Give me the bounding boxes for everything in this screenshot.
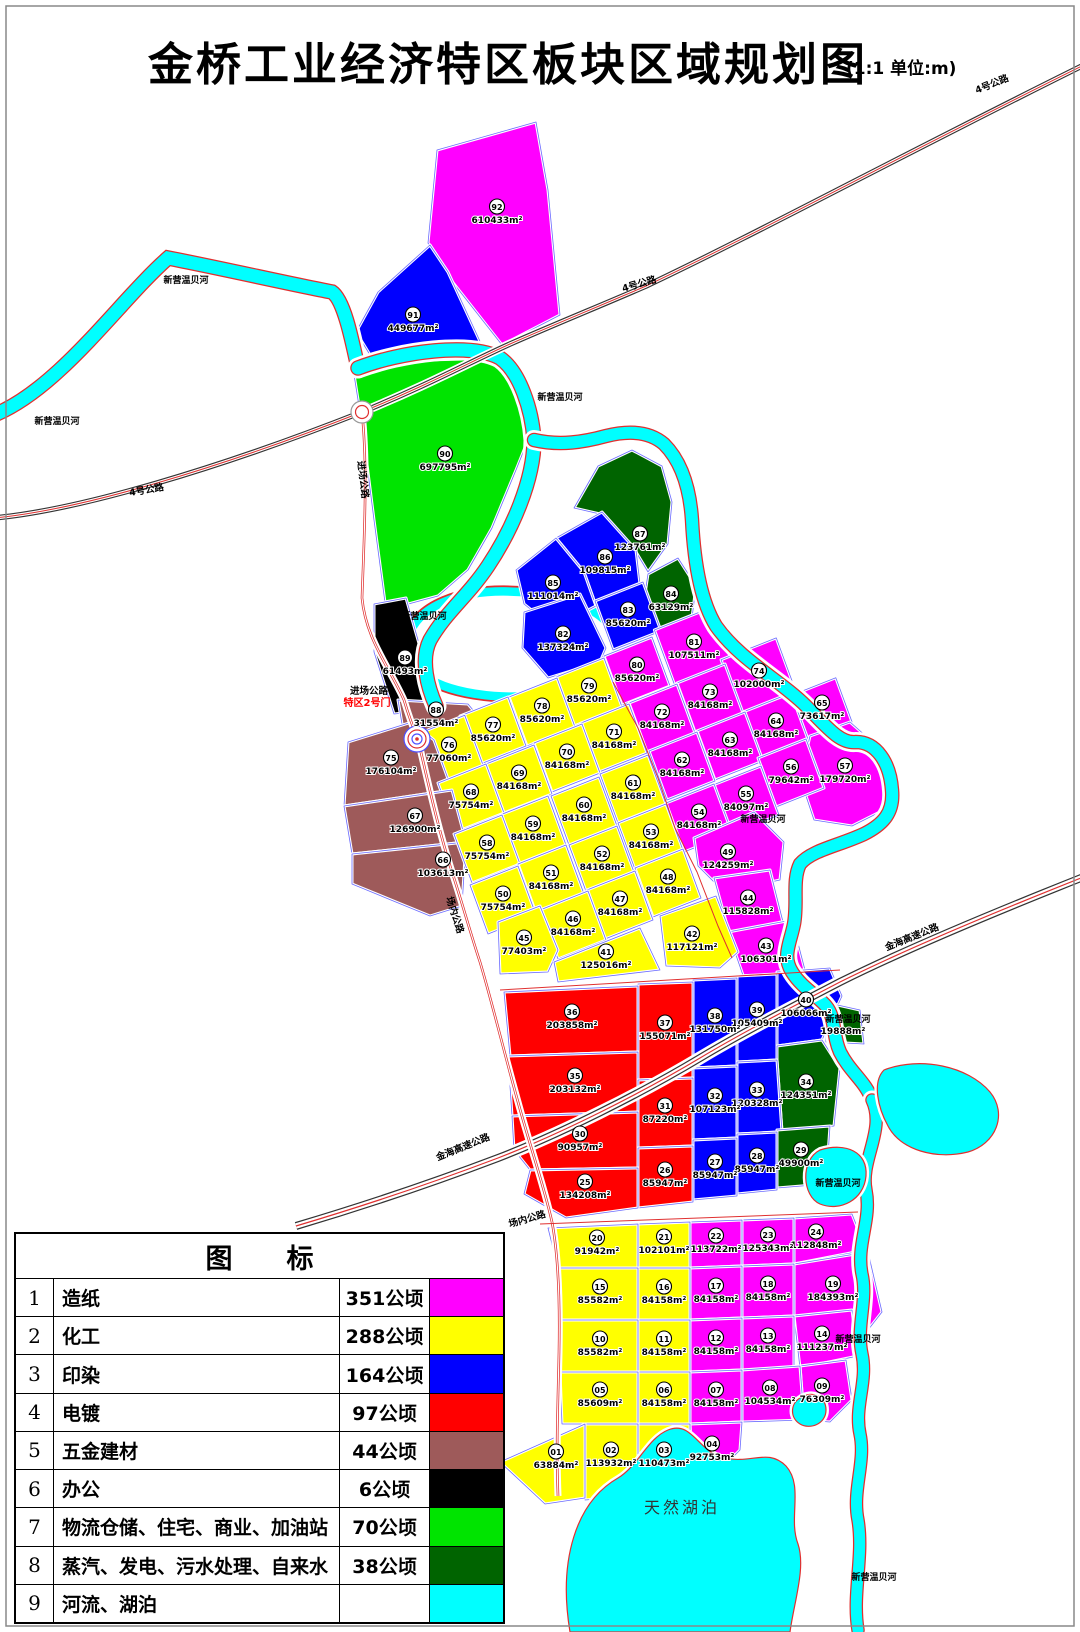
block-area-text: 155071m²: [640, 1032, 691, 1042]
block-area-text: 84168m²: [598, 908, 643, 918]
block-number: 13: [762, 1332, 773, 1341]
block-area-text: 84168m²: [754, 730, 799, 740]
block-number: 92: [491, 203, 502, 212]
legend-swatch: [430, 1317, 503, 1354]
legend-row-number: 4: [16, 1394, 54, 1431]
block-area-text: 84168m²: [562, 814, 607, 824]
block-area-text: 85620m²: [520, 715, 565, 725]
block-number: 21: [658, 1233, 670, 1242]
block-area-text: 184393m²: [808, 1293, 859, 1303]
block-22-region[interactable]: [690, 1220, 742, 1268]
block-area-text: 84097m²: [724, 803, 769, 813]
river-label: 新营温贝河: [34, 415, 79, 427]
block-number: 22: [710, 1232, 721, 1241]
block-number: 48: [662, 873, 674, 882]
block-area-text: 104534m²: [745, 1397, 796, 1407]
legend-row: 5五金建材44公顷: [16, 1432, 503, 1470]
legend-row-name: 五金建材: [54, 1432, 340, 1469]
block-area-text: 85609m²: [578, 1399, 623, 1409]
block-area-text: 87220m²: [643, 1115, 688, 1125]
block-number: 40: [800, 996, 812, 1005]
block-number: 11: [658, 1335, 670, 1344]
block-number: 04: [706, 1440, 718, 1449]
legend-row: 4电镀97公顷: [16, 1394, 503, 1432]
legend-row: 8蒸汽、发电、污水处理、自来水38公顷: [16, 1547, 503, 1585]
block-area-text: 84168m²: [646, 886, 691, 896]
lake-shape: [877, 1064, 998, 1155]
legend-row-name: 蒸汽、发电、污水处理、自来水: [54, 1547, 340, 1584]
block-area-text: 84168m²: [511, 833, 556, 843]
block-area-text: 449677m²: [388, 324, 439, 334]
river-label: 新营温贝河: [401, 610, 446, 622]
block-area-text: 115828m²: [723, 907, 774, 917]
block-number: 27: [709, 1158, 720, 1167]
river-label: 新营温贝河: [815, 1177, 860, 1189]
river-label: 新营温贝河: [835, 1333, 880, 1345]
block-number: 16: [658, 1283, 670, 1292]
legend-swatch: [430, 1432, 503, 1469]
block-number: 61: [627, 779, 639, 788]
legend-row-area: 6公顷: [340, 1470, 430, 1507]
block-area-text: 124259m²: [703, 861, 754, 871]
block-area-text: 203858m²: [547, 1021, 598, 1031]
block-area-text: 85620m²: [471, 734, 516, 744]
block-number: 45: [518, 934, 530, 943]
block-number: 88: [430, 706, 442, 715]
block-number: 36: [566, 1008, 578, 1017]
legend-swatch: [430, 1355, 503, 1392]
river-label: 新营温贝河: [851, 1571, 896, 1583]
block-number: 80: [631, 661, 643, 670]
legend-row-area: 351公顷: [340, 1279, 430, 1316]
block-number: 50: [497, 890, 509, 899]
block-number: 19: [827, 1280, 839, 1289]
road-label: 4号公路: [973, 72, 1011, 96]
page-title: 金桥工业经济特区板块区域规划图: [148, 28, 868, 93]
block-area-text: 75754m²: [481, 903, 526, 913]
block-area-text: 91942m²: [575, 1247, 620, 1257]
planning-map-page: 92610433m²91449677m²90697795m²8961493m²8…: [0, 0, 1080, 1632]
block-area-text: 84168m²: [708, 749, 753, 759]
block-number: 66: [437, 856, 449, 865]
legend-row-number: 3: [16, 1355, 54, 1392]
legend-row-number: 5: [16, 1432, 54, 1469]
block-area-text: 75754m²: [465, 852, 510, 862]
block-number: 62: [676, 756, 687, 765]
legend-row: 1造纸351公顷: [16, 1279, 503, 1317]
block-area-text: 110473m²: [639, 1459, 690, 1469]
block-area-text: 19888m²: [821, 1027, 866, 1037]
river-label: 新营温贝河: [740, 813, 785, 825]
block-number: 74: [753, 667, 765, 676]
block-area-text: 106066m²: [781, 1009, 832, 1019]
block-number: 38: [709, 1012, 721, 1021]
legend-row-number: 1: [16, 1279, 54, 1316]
block-05-region[interactable]: [560, 1372, 638, 1424]
legend-row-name: 办公: [54, 1470, 340, 1507]
legend-row: 7物流仓储、住宅、商业、加油站70公顷: [16, 1508, 503, 1546]
block-area-text: 84158m²: [746, 1345, 791, 1355]
block-number: 43: [760, 942, 771, 951]
block-number: 33: [751, 1086, 762, 1095]
block-area-text: 113722m²: [691, 1245, 742, 1255]
lake-label: 天然湖泊: [644, 1498, 720, 1517]
legend-row-number: 2: [16, 1317, 54, 1354]
legend-row: 2化工288公顷: [16, 1317, 503, 1355]
block-number: 59: [527, 820, 539, 829]
block-area-text: 84158m²: [642, 1296, 687, 1306]
block-number: 28: [751, 1152, 763, 1161]
block-number: 25: [579, 1178, 591, 1187]
block-area-text: 76309m²: [800, 1395, 845, 1405]
block-number: 14: [816, 1330, 828, 1339]
block-number: 64: [770, 717, 782, 726]
legend-row-area: 164公顷: [340, 1355, 430, 1392]
legend-row: 3印染164公顷: [16, 1355, 503, 1393]
block-area-text: 92753m²: [690, 1453, 735, 1463]
block-number: 72: [656, 708, 667, 717]
block-number: 26: [659, 1166, 671, 1175]
block-area-text: 107123m²: [690, 1105, 741, 1115]
block-area-text: 77060m²: [427, 754, 472, 764]
legend-row-area: 70公顷: [340, 1508, 430, 1545]
block-area-text: 84168m²: [545, 761, 590, 771]
block-area-text: 84168m²: [529, 882, 574, 892]
legend-swatch: [430, 1470, 503, 1507]
block-area-text: 85582m²: [578, 1348, 623, 1358]
block-area-text: 63884m²: [534, 1461, 579, 1471]
block-area-text: 84158m²: [694, 1295, 739, 1305]
legend-swatch: [430, 1279, 503, 1316]
legend-swatch: [430, 1547, 503, 1584]
legend-row-number: 6: [16, 1470, 54, 1507]
block-number: 68: [465, 788, 477, 797]
block-area-text: 112848m²: [791, 1241, 842, 1251]
block-number: 52: [596, 850, 607, 859]
block-number: 41: [600, 948, 612, 957]
block-area-label: 19888m²: [821, 1027, 866, 1037]
legend-row-name: 印染: [54, 1355, 340, 1392]
block-area-text: 63129m²: [649, 603, 694, 613]
block-area-text: 84158m²: [642, 1348, 687, 1358]
block-area-text: 123761m²: [615, 543, 666, 553]
legend: 图 标 1造纸351公顷2化工288公顷3印染164公顷4电镀97公顷5五金建材…: [14, 1232, 505, 1624]
block-area-text: 61493m²: [383, 667, 428, 677]
block-number: 44: [742, 894, 754, 903]
block-area-text: 131750m²: [690, 1025, 741, 1035]
block-area-text: 84158m²: [746, 1293, 791, 1303]
block-number: 12: [710, 1334, 721, 1343]
block-number: 53: [645, 828, 656, 837]
block-number: 10: [594, 1335, 606, 1344]
block-number: 55: [740, 790, 752, 799]
block-area-text: 102000m²: [734, 680, 785, 690]
block-area-text: 85947m²: [643, 1179, 688, 1189]
block-90-region[interactable]: [352, 358, 532, 610]
block-area-text: 176104m²: [366, 767, 417, 777]
block-area-text: 137324m²: [538, 643, 589, 653]
block-area-text: 111014m²: [528, 592, 579, 602]
block-06-region[interactable]: [638, 1372, 690, 1424]
block-area-text: 610433m²: [472, 216, 523, 226]
block-number: 82: [557, 630, 568, 639]
legend-row-name: 化工: [54, 1317, 340, 1354]
block-area-text: 84158m²: [642, 1399, 687, 1409]
block-number: 83: [622, 606, 633, 615]
block-area-text: 84168m²: [677, 821, 722, 831]
legend-swatch: [430, 1394, 503, 1431]
scale-note: (1:1 单位:m): [846, 54, 956, 79]
block-area-text: 113932m²: [586, 1459, 637, 1469]
block-area-text: 179720m²: [820, 775, 871, 785]
block-number: 81: [688, 638, 700, 647]
block-number: 73: [704, 688, 715, 697]
block-area-text: 73617m²: [800, 712, 845, 722]
block-number: 70: [561, 748, 573, 757]
block-area-text: 85620m²: [606, 619, 651, 629]
roundabout-icon: [351, 401, 373, 423]
block-number: 78: [536, 702, 548, 711]
road-label: 进场公路: [350, 685, 389, 697]
block-number: 56: [785, 763, 797, 772]
block-area-text: 85947m²: [693, 1171, 738, 1181]
block-area-text: 85620m²: [615, 674, 660, 684]
block-number: 63: [724, 736, 735, 745]
block-number: 57: [839, 762, 850, 771]
legend-row: 6办公6公顷: [16, 1470, 503, 1508]
block-area-text: 84168m²: [688, 701, 733, 711]
block-number: 89: [399, 654, 411, 663]
legend-row-area: 288公顷: [340, 1317, 430, 1354]
roundabout-icon: [415, 737, 419, 741]
block-area-text: 106301m²: [741, 955, 792, 965]
block-area-text: 84168m²: [640, 721, 685, 731]
legend-row-name: 物流仓储、住宅、商业、加油站: [54, 1508, 340, 1545]
block-number: 75: [385, 754, 397, 763]
block-number: 37: [659, 1019, 670, 1028]
block-number: 77: [487, 721, 498, 730]
block-number: 85: [547, 579, 559, 588]
block-number: 79: [583, 682, 595, 691]
block-number: 58: [481, 839, 493, 848]
legend-row-area: [340, 1585, 430, 1622]
block-area-text: 107511m²: [669, 651, 720, 661]
block-area-text: 85620m²: [567, 695, 612, 705]
block-number: 09: [816, 1382, 828, 1391]
block-area-text: 125343m²: [743, 1244, 794, 1254]
block-area-text: 84168m²: [611, 792, 656, 802]
block-number: 24: [810, 1228, 822, 1237]
block-area-text: 85582m²: [578, 1296, 623, 1306]
block-number: 67: [409, 812, 420, 821]
block-area-text: 84168m²: [580, 863, 625, 873]
block-number: 03: [658, 1446, 669, 1455]
block-number: 01: [550, 1448, 562, 1457]
block-number: 42: [686, 930, 697, 939]
block-number: 35: [569, 1072, 581, 1081]
block-number: 07: [710, 1386, 721, 1395]
block-area-text: 79642m²: [769, 776, 814, 786]
river-label: 新营温贝河: [537, 391, 582, 403]
legend-row-name: 电镀: [54, 1394, 340, 1431]
block-number: 71: [608, 728, 620, 737]
block-area-text: 109815m²: [580, 566, 631, 576]
block-area-text: 84168m²: [660, 769, 705, 779]
block-area-text: 103613m²: [418, 869, 469, 879]
block-number: 90: [439, 450, 451, 459]
legend-row-number: 9: [16, 1585, 54, 1622]
legend-row-area: 44公顷: [340, 1432, 430, 1469]
block-number: 20: [591, 1234, 603, 1243]
block-area-text: 697795m²: [420, 463, 471, 473]
block-area-text: 126900m²: [390, 825, 441, 835]
legend-row-name: 河流、湖泊: [54, 1585, 340, 1622]
block-area-text: 203132m²: [550, 1085, 601, 1095]
legend-row-number: 8: [16, 1547, 54, 1584]
legend-title: 图 标: [16, 1234, 503, 1279]
road-label: 场内公路: [507, 1208, 547, 1230]
legend-row-area: 38公顷: [340, 1547, 430, 1584]
block-number: 91: [407, 311, 419, 320]
river-label: 新营温贝河: [825, 1013, 870, 1025]
legend-row-name: 造纸: [54, 1279, 340, 1316]
block-number: 15: [594, 1283, 606, 1292]
block-number: 39: [751, 1006, 763, 1015]
block-number: 46: [567, 915, 579, 924]
block-area-text: 31554m²: [414, 719, 459, 729]
block-number: 69: [513, 769, 525, 778]
block-area-text: 117121m²: [667, 943, 718, 953]
block-number: 84: [665, 590, 677, 599]
legend-row: 9河流、湖泊: [16, 1585, 503, 1622]
legend-swatch: [430, 1585, 503, 1622]
block-number: 05: [594, 1386, 606, 1395]
block-area-text: 84158m²: [694, 1347, 739, 1357]
block-area-text: 84168m²: [629, 841, 674, 851]
legend-row-number: 7: [16, 1508, 54, 1545]
block-area-text: 85947m²: [735, 1165, 780, 1175]
block-number: 02: [605, 1446, 616, 1455]
legend-row-area: 97公顷: [340, 1394, 430, 1431]
block-number: 32: [709, 1092, 720, 1101]
block-number: 76: [443, 741, 455, 750]
legend-rows: 1造纸351公顷2化工288公顷3印染164公顷4电镀97公顷5五金建材44公顷…: [16, 1279, 503, 1622]
block-number: 54: [693, 808, 705, 817]
block-number: 17: [710, 1282, 721, 1291]
block-number: 23: [762, 1231, 773, 1240]
block-number: 06: [658, 1386, 670, 1395]
block-number: 87: [634, 530, 645, 539]
block-number: 08: [764, 1384, 776, 1393]
block-number: 29: [795, 1146, 807, 1155]
block-number: 51: [545, 869, 557, 878]
block-area-text: 75754m²: [449, 801, 494, 811]
block-number: 30: [574, 1130, 586, 1139]
block-area-text: 84168m²: [592, 741, 637, 751]
block-number: 49: [722, 848, 734, 857]
block-area-text: 77403m²: [502, 947, 547, 957]
block-number: 86: [599, 553, 611, 562]
block-area-text: 84158m²: [694, 1399, 739, 1409]
block-area-text: 124351m²: [781, 1091, 832, 1101]
block-number: 65: [816, 699, 828, 708]
block-number: 18: [762, 1280, 774, 1289]
block-area-text: 102101m²: [639, 1246, 690, 1256]
block-number: 31: [659, 1102, 671, 1111]
block-number: 47: [614, 895, 625, 904]
block-number: 34: [800, 1078, 812, 1087]
legend-swatch: [430, 1508, 503, 1545]
gate-label: 特区2号门: [344, 696, 391, 709]
block-area-text: 134208m²: [560, 1191, 611, 1201]
block-area-text: 84168m²: [551, 928, 596, 938]
river-label: 新营温贝河: [163, 274, 208, 286]
block-area-text: 90957m²: [558, 1143, 603, 1153]
block-area-text: 84168m²: [497, 782, 542, 792]
block-number: 60: [578, 801, 590, 810]
block-area-text: 49900m²: [779, 1159, 824, 1169]
block-area-text: 125016m²: [581, 961, 632, 971]
